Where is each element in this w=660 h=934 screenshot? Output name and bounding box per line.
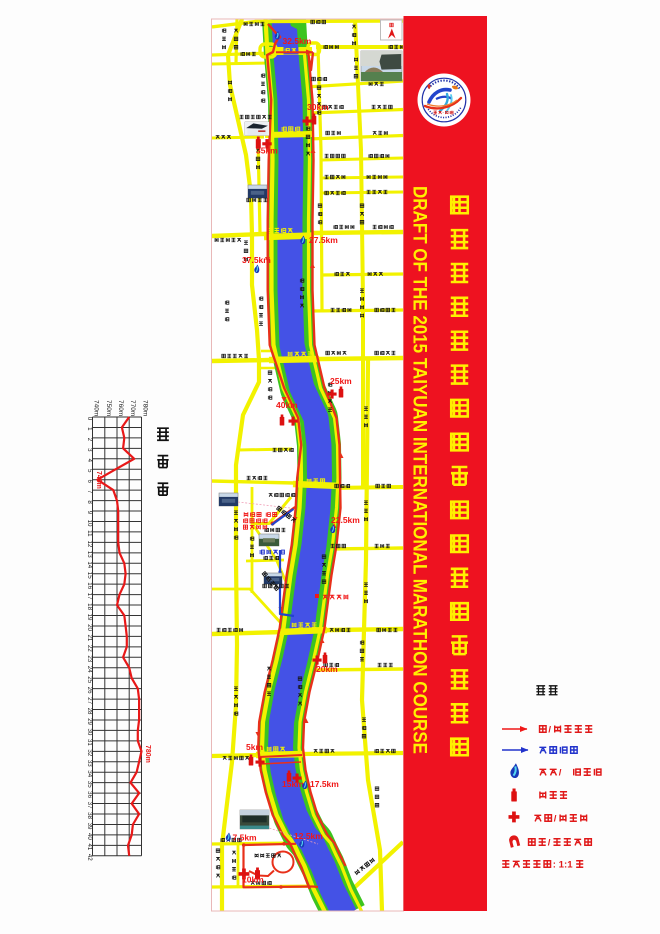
svg-text:0: 0 (86, 417, 93, 421)
svg-text:780m: 780m (144, 745, 151, 763)
svg-text:: 1:1: : 1:1 (553, 860, 573, 871)
svg-text:31: 31 (86, 739, 93, 746)
svg-text:780m: 780m (142, 400, 149, 416)
svg-text:5km: 5km (246, 742, 263, 752)
svg-text:32.5km: 32.5km (283, 36, 312, 46)
svg-text:17.5km: 17.5km (310, 779, 339, 789)
svg-text:770m: 770m (129, 400, 136, 416)
svg-text:/: / (554, 814, 557, 825)
svg-text:32: 32 (86, 749, 93, 756)
svg-text:5: 5 (86, 469, 93, 473)
svg-text:4: 4 (86, 459, 93, 463)
svg-text:10km: 10km (242, 875, 264, 885)
svg-text:1: 1 (86, 427, 93, 431)
svg-text:760m: 760m (117, 400, 124, 416)
svg-text:25km: 25km (330, 376, 352, 386)
svg-text:12: 12 (86, 540, 93, 547)
svg-text:12.5km: 12.5km (294, 831, 323, 841)
svg-text:29: 29 (86, 718, 93, 725)
svg-text:7: 7 (86, 490, 93, 494)
svg-text:9: 9 (86, 511, 93, 515)
svg-text:21: 21 (86, 634, 93, 641)
svg-text:40: 40 (86, 833, 93, 840)
svg-text:30km: 30km (307, 102, 329, 112)
svg-text:740m: 740m (93, 400, 100, 416)
svg-text:/: / (559, 768, 562, 779)
svg-text:7.5km: 7.5km (233, 833, 258, 843)
svg-text:36: 36 (86, 791, 93, 798)
svg-text:24: 24 (86, 666, 93, 673)
svg-text:20: 20 (86, 624, 93, 631)
svg-text:23: 23 (86, 655, 93, 662)
svg-text:6: 6 (86, 479, 93, 483)
svg-text:37.5km: 37.5km (242, 255, 271, 265)
svg-text:11: 11 (86, 530, 93, 537)
svg-text:41: 41 (86, 843, 93, 850)
svg-text:37: 37 (86, 802, 93, 809)
svg-text:16: 16 (86, 582, 93, 589)
svg-text:22.5km: 22.5km (331, 515, 360, 525)
svg-text:2: 2 (86, 438, 93, 442)
svg-text:20km: 20km (316, 664, 338, 674)
svg-text:745m: 745m (95, 471, 102, 489)
svg-text:13: 13 (86, 551, 93, 558)
svg-text:25: 25 (86, 676, 93, 683)
svg-text:22: 22 (86, 645, 93, 652)
svg-text:26: 26 (86, 687, 93, 694)
svg-text:40km: 40km (276, 400, 298, 410)
svg-text:33: 33 (86, 760, 93, 767)
svg-text:8: 8 (86, 500, 93, 504)
svg-text:10: 10 (86, 520, 93, 527)
svg-text:19: 19 (86, 614, 93, 621)
svg-text:27: 27 (86, 697, 93, 704)
svg-text:38: 38 (86, 812, 93, 819)
svg-text:15km: 15km (282, 779, 304, 789)
svg-text:28: 28 (86, 708, 93, 715)
svg-text:/: / (548, 838, 551, 849)
svg-text:750m: 750m (105, 400, 112, 416)
svg-text:39: 39 (86, 823, 93, 830)
svg-text:/: / (548, 725, 551, 736)
svg-text:17: 17 (86, 593, 93, 600)
svg-text:34: 34 (86, 770, 93, 777)
svg-text:DRAFT OF THE 2015 TAIYUAN INTE: DRAFT OF THE 2015 TAIYUAN INTERNATIONAL … (409, 186, 430, 754)
svg-text:14: 14 (86, 561, 93, 568)
svg-text:27.5km: 27.5km (309, 235, 338, 245)
svg-text:·: · (443, 110, 444, 115)
svg-text:18: 18 (86, 603, 93, 610)
svg-text:35: 35 (86, 781, 93, 788)
svg-text:42: 42 (86, 854, 93, 861)
svg-text:15: 15 (86, 572, 93, 579)
svg-text:30: 30 (86, 728, 93, 735)
svg-text:3: 3 (86, 448, 93, 452)
